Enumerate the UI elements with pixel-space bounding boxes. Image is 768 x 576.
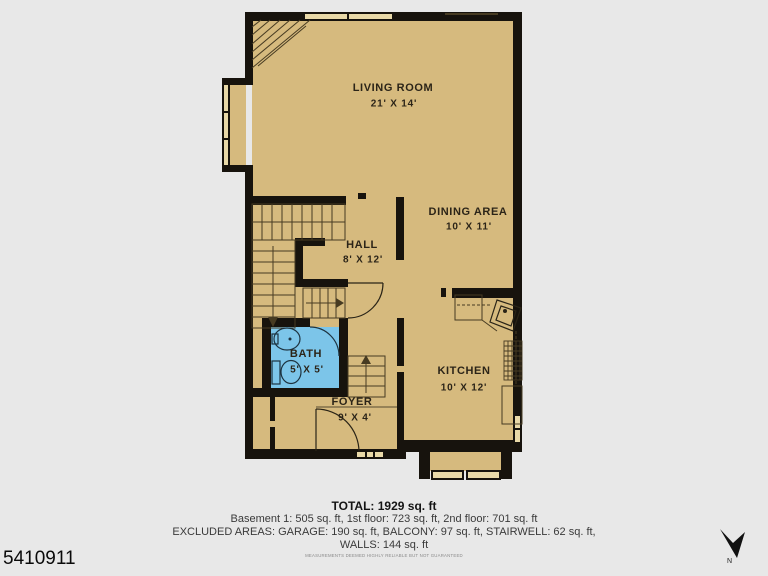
stairs-main-upper: [252, 204, 345, 240]
kitchen-lower-counter: [502, 386, 522, 424]
dims-foyer: 9' X 4': [338, 413, 372, 424]
dims-dining-area: 10' X 11': [446, 222, 492, 233]
north-arrow-label: N: [727, 558, 732, 565]
excluded-areas-text: EXCLUDED AREAS: GARAGE: 190 sq. ft, BALC…: [0, 526, 768, 539]
label-foyer: FOYER: [332, 396, 373, 408]
dims-bath: 5' X 5': [290, 365, 324, 376]
dims-kitchen: 10' X 12': [441, 383, 487, 394]
label-kitchen: KITCHEN: [437, 365, 490, 377]
area-summary: TOTAL: 1929 sq. ft Basement 1: 505 sq. f…: [0, 500, 768, 560]
label-hall: HALL: [346, 239, 378, 251]
stairs-main-down-run: [252, 240, 295, 328]
stairwell-hatch: [252, 20, 310, 68]
stairs-hall-run: [303, 288, 345, 318]
walls-area-text: WALLS: 144 sq. ft: [0, 539, 768, 552]
label-dining-area: DINING AREA: [429, 206, 508, 218]
door-hall: [348, 283, 383, 318]
stairs-foyer-run: [348, 355, 385, 397]
disclaimer-text: MEASUREMENTS DEEMED HIGHLY RELIABLE BUT …: [108, 554, 661, 558]
label-living-room: LIVING ROOM: [353, 82, 434, 94]
floor-areas-text: Basement 1: 505 sq. ft, 1st floor: 723 s…: [0, 513, 768, 526]
total-area-text: TOTAL: 1929 sq. ft: [0, 500, 768, 513]
dims-living-room: 21' X 14': [371, 99, 417, 110]
dims-hall: 8' X 12': [343, 255, 383, 266]
listing-id: 5410911: [3, 548, 76, 570]
kitchen-stove: [504, 341, 522, 380]
label-bath: BATH: [290, 348, 322, 360]
bath-sink: [272, 328, 300, 350]
floorplan-page: LIVING ROOM 21' X 14' DINING AREA 10' X …: [0, 0, 768, 576]
kitchen-sink: [490, 300, 521, 331]
